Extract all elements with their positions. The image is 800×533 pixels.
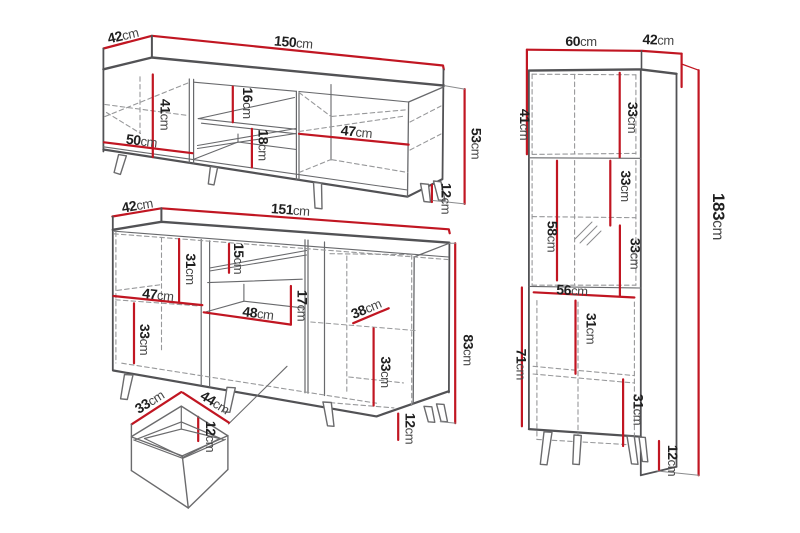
svg-text:60cm: 60cm — [565, 33, 596, 49]
svg-text:83cm: 83cm — [461, 334, 477, 365]
svg-text:183cm: 183cm — [709, 193, 728, 240]
svg-text:150cm: 150cm — [273, 32, 313, 51]
svg-text:31cm: 31cm — [630, 394, 646, 425]
svg-text:12cm: 12cm — [439, 183, 455, 214]
svg-text:47cm: 47cm — [340, 122, 373, 141]
svg-text:33cm: 33cm — [378, 356, 394, 387]
svg-text:15cm: 15cm — [231, 243, 247, 274]
svg-text:58cm: 58cm — [544, 221, 560, 252]
svg-text:12cm: 12cm — [403, 413, 419, 444]
svg-text:53cm: 53cm — [469, 128, 485, 159]
svg-text:47cm: 47cm — [142, 285, 175, 304]
svg-text:33cm: 33cm — [627, 238, 643, 269]
svg-text:17cm: 17cm — [295, 290, 311, 321]
svg-text:41cm: 41cm — [158, 99, 174, 130]
svg-text:12cm: 12cm — [203, 421, 219, 452]
svg-text:42cm: 42cm — [642, 31, 674, 48]
svg-text:16cm: 16cm — [240, 87, 256, 118]
svg-text:12cm: 12cm — [665, 445, 681, 476]
svg-text:31cm: 31cm — [183, 253, 199, 284]
svg-text:33cm: 33cm — [625, 102, 641, 133]
svg-text:33cm: 33cm — [137, 324, 153, 355]
svg-text:41cm: 41cm — [517, 109, 533, 140]
svg-text:71cm: 71cm — [514, 349, 530, 380]
svg-text:33cm: 33cm — [618, 170, 634, 201]
svg-text:56cm: 56cm — [556, 281, 588, 299]
svg-text:31cm: 31cm — [584, 313, 600, 344]
svg-text:18cm: 18cm — [256, 129, 272, 160]
svg-text:151cm: 151cm — [270, 200, 310, 219]
